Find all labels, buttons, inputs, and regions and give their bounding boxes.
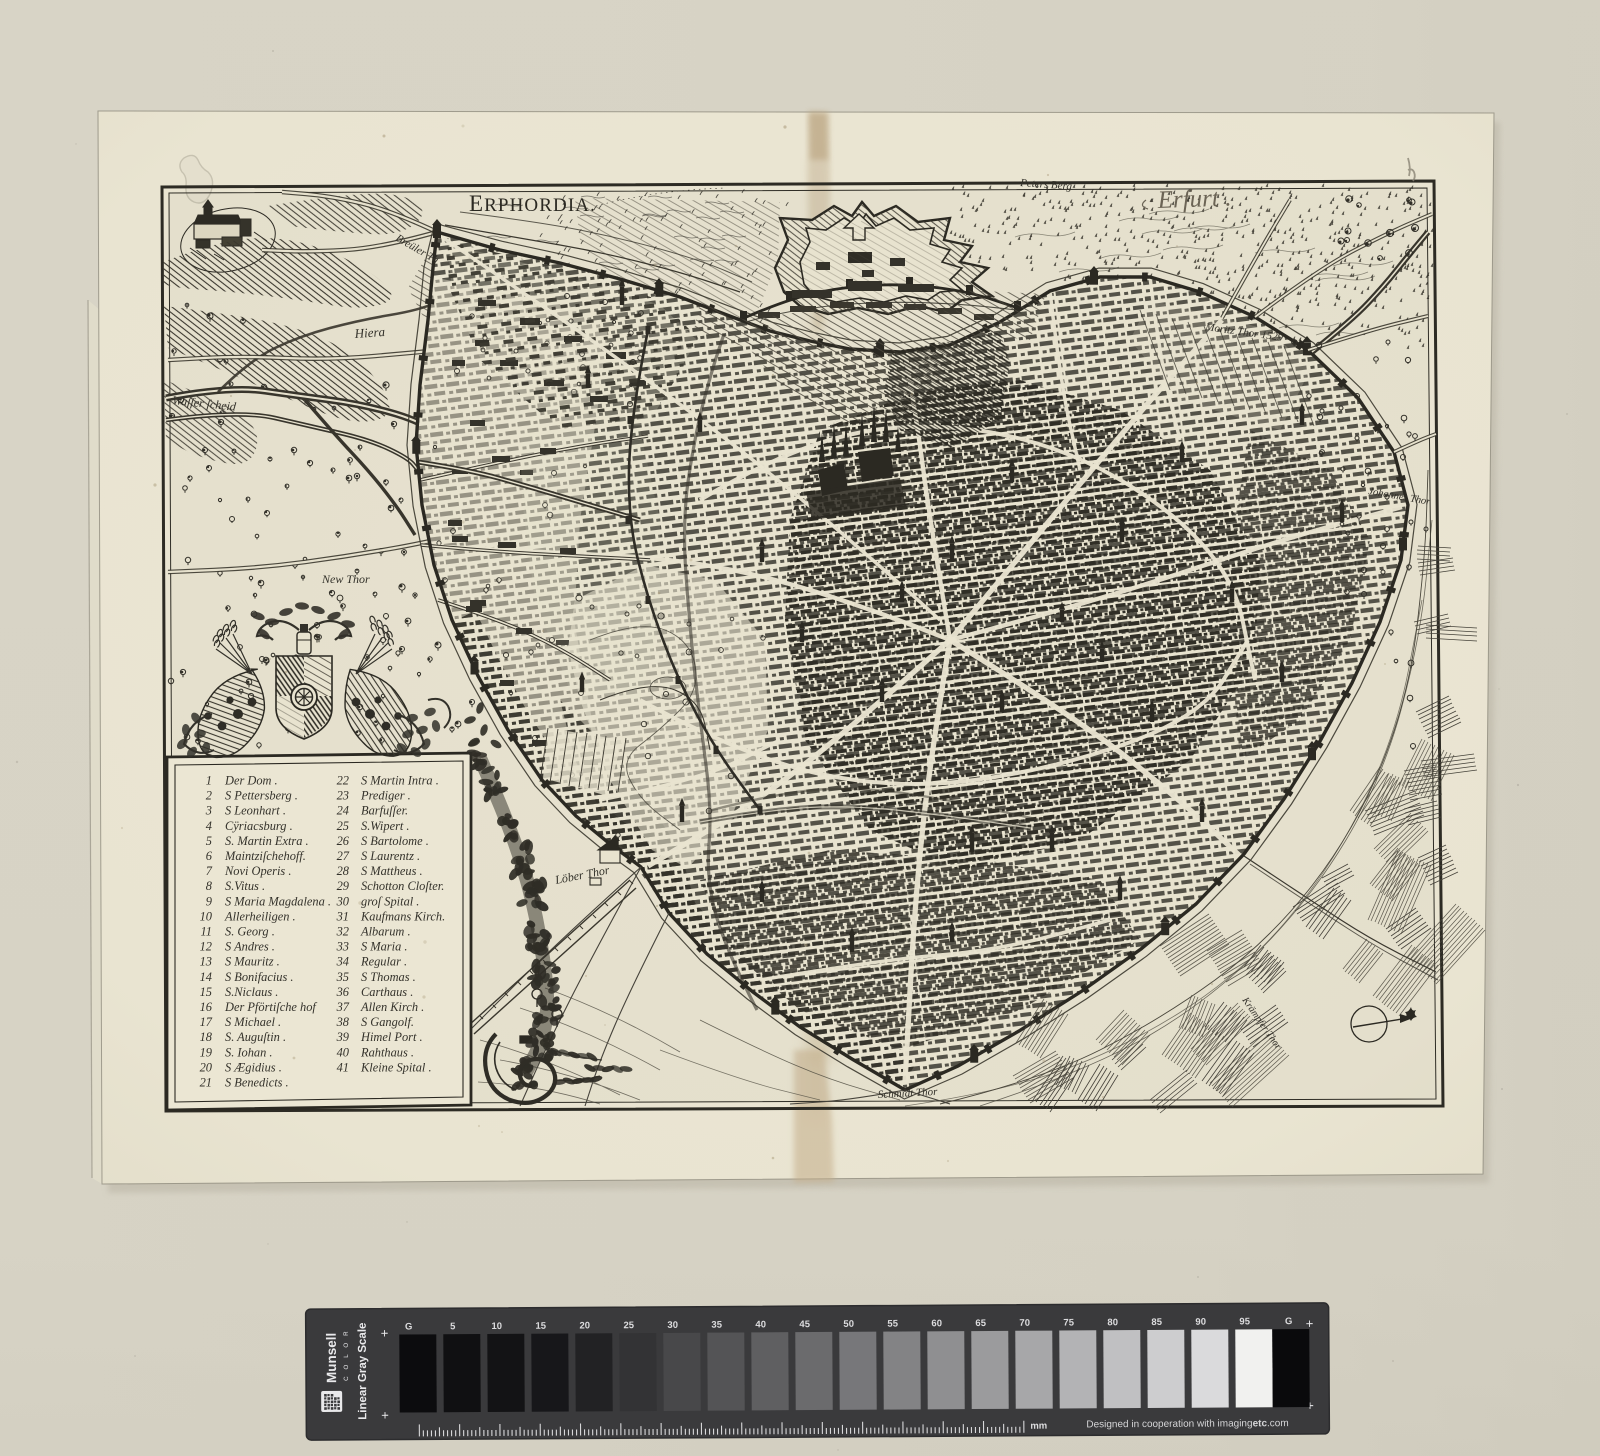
svg-text:25: 25	[623, 1320, 634, 1331]
svg-text:Carthaus .: Carthaus .	[361, 985, 413, 999]
svg-text:Regular .: Regular .	[360, 955, 407, 969]
svg-text:S Martin Intra .: S Martin Intra .	[361, 774, 439, 788]
svg-text:+: +	[381, 1326, 389, 1341]
svg-text:ERPHORDIA.: ERPHORDIA.	[469, 191, 596, 216]
svg-text:11: 11	[201, 925, 212, 939]
svg-text:S.Vitus .: S.Vitus .	[225, 879, 265, 893]
svg-text:Maintziſchehoff.: Maintziſchehoff.	[224, 849, 306, 863]
svg-text:19: 19	[200, 1045, 212, 1059]
svg-text:15: 15	[200, 985, 212, 999]
svg-text:S Laurentz .: S Laurentz .	[361, 849, 420, 863]
svg-text:C O L O R: C O L O R	[343, 1329, 350, 1381]
svg-text:65: 65	[975, 1318, 986, 1329]
svg-text:18: 18	[200, 1030, 213, 1044]
svg-text:Linear Gray Scale: Linear Gray Scale	[357, 1323, 370, 1420]
svg-text:34: 34	[336, 955, 349, 969]
svg-text:S Leonhart .: S Leonhart .	[225, 804, 286, 818]
svg-text:40: 40	[337, 1045, 350, 1059]
svg-text:10: 10	[491, 1321, 502, 1332]
svg-text:3: 3	[205, 804, 212, 818]
svg-text:14: 14	[200, 970, 212, 984]
svg-text:Munsell: Munsell	[324, 1333, 339, 1383]
svg-text:26: 26	[337, 834, 350, 848]
svg-text:22: 22	[337, 774, 349, 788]
svg-text:20: 20	[579, 1320, 590, 1331]
svg-text:30: 30	[336, 894, 350, 908]
svg-text:13: 13	[200, 955, 212, 969]
svg-text:Erfurt .: Erfurt .	[1156, 184, 1232, 214]
svg-text:S Pettersberg .: S Pettersberg .	[225, 789, 298, 803]
svg-text:9: 9	[206, 894, 212, 908]
svg-text:S.Wipert .: S.Wipert .	[361, 819, 410, 833]
svg-text:S. Iohan .: S. Iohan .	[225, 1045, 273, 1059]
svg-text:Der Dom .: Der Dom .	[224, 774, 278, 788]
svg-text:17: 17	[200, 1015, 213, 1029]
svg-text:5: 5	[450, 1321, 456, 1332]
svg-text:50: 50	[843, 1319, 854, 1330]
svg-text:S. Georg .: S. Georg .	[225, 925, 275, 939]
svg-text:27: 27	[337, 849, 350, 863]
svg-text:33: 33	[336, 940, 349, 954]
svg-text:28: 28	[337, 864, 350, 878]
svg-text:+: +	[1306, 1316, 1314, 1331]
svg-text:1: 1	[206, 774, 212, 788]
svg-text:S Ægidius .: S Ægidius .	[225, 1060, 282, 1074]
svg-text:Kaufmans Kirch.: Kaufmans Kirch.	[360, 909, 445, 923]
svg-text:S Andres .: S Andres .	[225, 940, 275, 954]
svg-text:Novi Operis .: Novi Operis .	[224, 864, 291, 878]
svg-text:4: 4	[206, 819, 212, 833]
svg-text:32: 32	[336, 925, 349, 939]
svg-text:35: 35	[711, 1320, 722, 1331]
svg-text:31: 31	[336, 909, 349, 923]
svg-text:37: 37	[336, 1000, 350, 1014]
svg-text:25: 25	[337, 819, 349, 833]
svg-text:Schotton Cloſter.: Schotton Cloſter.	[361, 879, 444, 893]
svg-text:75: 75	[1063, 1317, 1074, 1328]
svg-text:10: 10	[200, 909, 213, 923]
svg-text:38: 38	[336, 1015, 350, 1029]
svg-text:S Benedicts .: S Benedicts .	[225, 1076, 289, 1090]
svg-text:S Maria .: S Maria .	[361, 940, 407, 954]
svg-text:S Gangolf.: S Gangolf.	[361, 1015, 414, 1029]
svg-text:15: 15	[535, 1321, 546, 1332]
svg-text:7: 7	[206, 864, 213, 878]
svg-text:35: 35	[336, 970, 349, 984]
svg-text:40: 40	[755, 1319, 766, 1330]
svg-text:16: 16	[200, 1000, 213, 1014]
svg-text:95: 95	[1239, 1316, 1250, 1327]
svg-text:24: 24	[337, 804, 349, 818]
svg-text:Allerheiligen .: Allerheiligen .	[224, 909, 296, 923]
svg-text:+: +	[381, 1408, 389, 1423]
svg-text:S Bonifacius .: S Bonifacius .	[225, 970, 294, 984]
svg-text:Hiera: Hiera	[353, 324, 386, 341]
svg-text:2: 2	[206, 789, 212, 803]
svg-text:20: 20	[200, 1060, 213, 1074]
svg-text:Rahthaus .: Rahthaus .	[360, 1045, 414, 1059]
svg-text:30: 30	[667, 1320, 678, 1331]
svg-text:8: 8	[206, 879, 213, 893]
svg-text:39: 39	[336, 1030, 349, 1044]
svg-text:12: 12	[200, 940, 212, 954]
svg-text:Allen Kirch .: Allen Kirch .	[360, 1000, 424, 1014]
svg-text:36: 36	[336, 985, 350, 999]
svg-text:Kleine Spital .: Kleine Spital .	[360, 1060, 432, 1074]
svg-text:85: 85	[1151, 1317, 1162, 1328]
svg-text:S.Niclaus .: S.Niclaus .	[225, 985, 278, 999]
svg-text:mm: mm	[1030, 1421, 1047, 1432]
svg-text:S Michael .: S Michael .	[225, 1015, 281, 1029]
svg-text:Prediger .: Prediger .	[360, 789, 411, 803]
svg-text:45: 45	[799, 1319, 810, 1330]
svg-text:80: 80	[1107, 1317, 1118, 1328]
svg-text:55: 55	[887, 1319, 898, 1330]
svg-text:groſ Spital .: groſ Spital .	[361, 894, 419, 908]
svg-text:70: 70	[1019, 1318, 1030, 1329]
svg-text:60: 60	[931, 1318, 942, 1329]
svg-text:S Mauritz .: S Mauritz .	[225, 955, 280, 969]
svg-text:41: 41	[337, 1060, 349, 1074]
svg-text:S Maria Magdalena .: S Maria Magdalena .	[225, 894, 331, 908]
svg-text:Cÿriacsburg .: Cÿriacsburg .	[225, 819, 293, 833]
svg-text:Barfuſſer.: Barfuſſer.	[361, 804, 408, 818]
svg-text:S. Martin Extra .: S. Martin Extra .	[225, 834, 309, 848]
svg-text:90: 90	[1195, 1317, 1206, 1328]
svg-text:21: 21	[200, 1076, 212, 1090]
svg-text:29: 29	[337, 879, 349, 893]
svg-text:Der Pförtiſche hof: Der Pförtiſche hof	[224, 1000, 317, 1014]
svg-text:G: G	[405, 1321, 412, 1332]
svg-text:S Thomas .: S Thomas .	[361, 970, 416, 984]
svg-text:23: 23	[337, 789, 349, 803]
svg-text:S Bartolome .: S Bartolome .	[361, 834, 429, 848]
svg-text:S Mattheus .: S Mattheus .	[361, 864, 423, 878]
svg-text:G: G	[1285, 1316, 1292, 1327]
svg-text:Himel Port .: Himel Port .	[360, 1030, 423, 1044]
svg-text:Albarum .: Albarum .	[360, 925, 411, 939]
svg-text:5: 5	[206, 834, 212, 848]
svg-text:S. Auguſtin .: S. Auguſtin .	[225, 1030, 286, 1044]
svg-text:New Thor: New Thor	[321, 572, 370, 586]
svg-text:6: 6	[206, 849, 213, 863]
svg-text:Designed in cooperation with i: Designed in cooperation with imagingetc.…	[1086, 1418, 1288, 1430]
